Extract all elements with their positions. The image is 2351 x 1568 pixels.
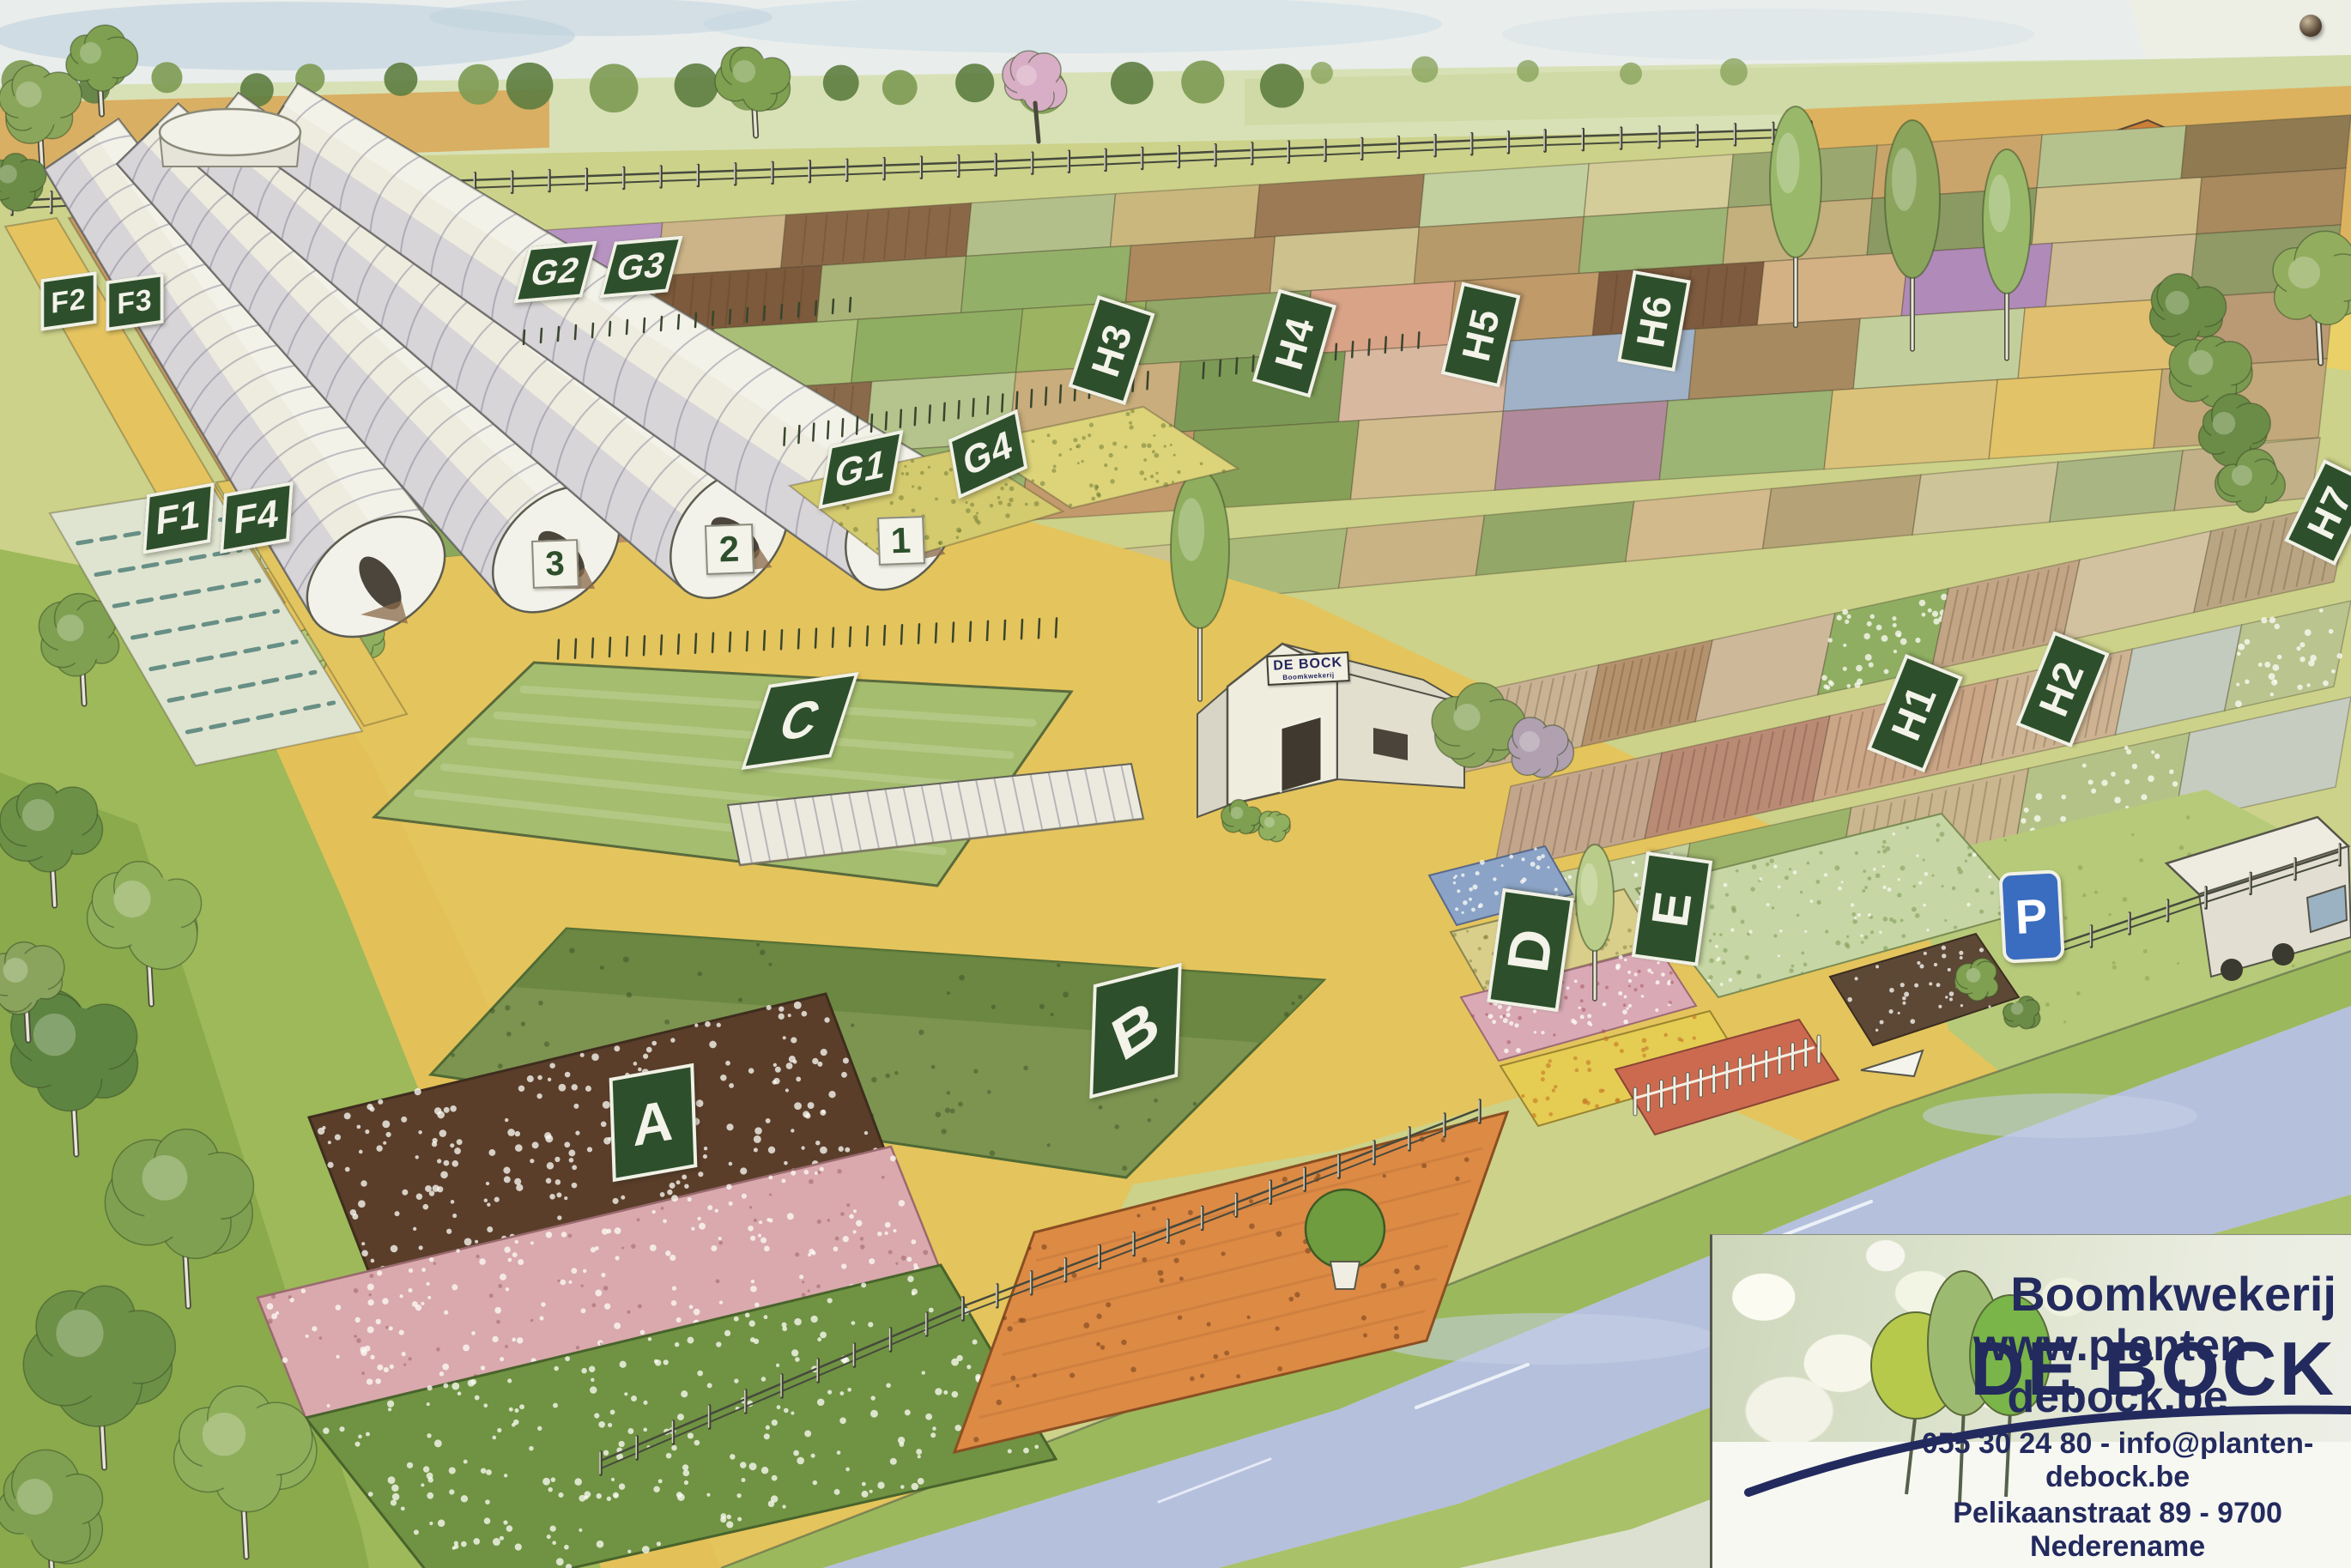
barn-sign: DE BOCK Boomkwekerij — [1266, 651, 1350, 686]
field-label-H4: H4 — [1252, 289, 1336, 398]
field-label-F3: F3 — [106, 273, 163, 331]
field-label-H6: H6 — [1617, 270, 1691, 372]
field-label-G1: G1 — [818, 430, 903, 510]
field-label-H3: H3 — [1068, 295, 1154, 405]
greenhouse-number-3: 3 — [531, 539, 579, 589]
field-label-G3: G3 — [599, 236, 682, 299]
parking-sign: P — [1998, 869, 2064, 964]
field-label-A: A — [609, 1063, 698, 1182]
greenhouse-number-1: 1 — [877, 516, 925, 566]
field-label-H1: H1 — [1867, 654, 1963, 772]
company-prefix: Boomkwekerij — [1970, 1266, 2336, 1322]
field-label-E: E — [1632, 851, 1712, 966]
field-label-C: C — [741, 672, 858, 770]
field-label-G2: G2 — [513, 241, 597, 304]
field-label-F2: F2 — [40, 271, 96, 331]
field-label-G4: G4 — [948, 409, 1028, 499]
field-label-H2: H2 — [2015, 631, 2109, 748]
field-label-B: B — [1089, 963, 1181, 1099]
greenhouse-number-2: 2 — [705, 524, 754, 575]
pushpin-icon — [2299, 15, 2322, 37]
address-line: Pelikaanstraat 89 - 9700 Nederename — [1892, 1497, 2343, 1564]
phone-email-line: 055 30 24 80 - info@planten-debock.be — [1892, 1427, 2343, 1494]
field-label-H5: H5 — [1441, 282, 1521, 388]
field-label-H7: H7 — [2284, 459, 2351, 566]
field-label-D: D — [1487, 888, 1574, 1012]
nursery-site-map-poster: F1F2F3F4G1G2G3G4H1H2H3H4H5H6H7ABCDE123P … — [0, 0, 2351, 1568]
field-label-F1: F1 — [142, 482, 215, 554]
field-label-F4: F4 — [220, 481, 294, 554]
website-url: www.planten-debock.be — [1892, 1320, 2343, 1423]
contact-block: www.planten-debock.be 055 30 24 80 - inf… — [1892, 1320, 2343, 1564]
logo-card: Boomkwekerij DE BOCK www.planten-debock.… — [1710, 1234, 2351, 1568]
